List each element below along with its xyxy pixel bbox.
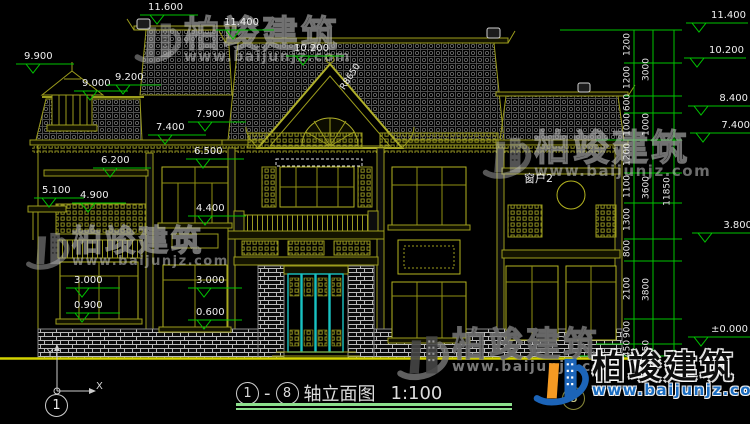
level-marker: 0.900 (66, 301, 120, 323)
level-value: 10.200 (684, 46, 746, 56)
centre-right-bay (388, 167, 470, 343)
level-value: 9.900 (16, 52, 74, 62)
ucs-x-label: X (96, 381, 103, 392)
level-value: 10.200 (286, 44, 344, 54)
dim-label: 11850 (664, 175, 673, 209)
level-marker: 9.900 (16, 52, 74, 74)
level-value: 11.400 (686, 11, 748, 21)
level-marker: 3.800 (692, 221, 750, 243)
entrance-door (258, 266, 374, 358)
level-marker: 8.400 (688, 94, 750, 116)
level-value: 3.800 (692, 221, 750, 231)
level-value: 11.400 (216, 18, 274, 28)
dim-label: 1100 (624, 170, 633, 204)
level-value: 7.900 (188, 110, 246, 120)
title-underline (236, 403, 512, 406)
level-value: 6.500 (186, 147, 244, 157)
level-value: ±0.000 (688, 325, 750, 335)
dim-label: 800 (624, 232, 633, 266)
level-value: 0.600 (188, 308, 242, 318)
level-value: 9.200 (107, 73, 161, 83)
level-marker: 0.600 (188, 308, 242, 330)
dim-label: 3000 (643, 53, 652, 87)
level-value: 4.400 (188, 204, 246, 214)
level-marker: 4.900 (72, 191, 126, 213)
level-marker: 6.200 (93, 156, 151, 178)
level-marker: 10.200 (684, 46, 746, 68)
title-underline-2 (236, 408, 512, 410)
window-label: 窗户2 (524, 170, 553, 186)
title-scale: 1:100 (391, 383, 443, 404)
level-value: 6.200 (93, 156, 151, 166)
level-marker: 9.200 (107, 73, 161, 95)
level-value: 3.000 (66, 276, 120, 286)
dim-label: 3800 (643, 273, 652, 307)
level-value: 7.400 (148, 123, 206, 133)
level-marker: 3.000 (188, 276, 242, 298)
dim-label: 2100 (624, 272, 633, 306)
title-separator: - (264, 383, 271, 404)
title-axis-start: 1 (236, 382, 259, 405)
cad-viewport: 11.600 11.400 10.200 9.900 9.000 9.200 7… (0, 0, 750, 424)
level-marker: ±0.000 (688, 325, 750, 347)
level-marker: 3.000 (66, 276, 120, 298)
dim-label: 450 (624, 332, 633, 366)
level-marker: 4.400 (188, 204, 246, 226)
dim-label: 1000 (643, 108, 652, 142)
dim-label: 1000 (624, 108, 633, 142)
level-value: 3.000 (188, 276, 242, 286)
title-axis-end: 8 (276, 382, 299, 405)
level-value: 7.400 (690, 121, 750, 131)
level-marker: 6.500 (186, 147, 244, 169)
axis-bubble-8: 8 (562, 387, 585, 410)
dim-label: 1200 (624, 28, 633, 62)
dim-label: 3600 (643, 171, 652, 205)
level-marker: 10.200 (286, 44, 344, 66)
right-wing (502, 168, 620, 340)
level-value: 4.900 (72, 191, 126, 201)
level-marker: 7.400 (690, 121, 750, 143)
level-marker: 11.400 (686, 11, 748, 33)
level-value: 8.400 (688, 94, 750, 104)
dim-label: 450 (643, 332, 652, 366)
level-value: 11.600 (140, 3, 198, 13)
level-marker: 7.400 (148, 123, 206, 145)
level-value: 0.900 (66, 301, 120, 311)
ucs-y-label: Y (47, 348, 53, 359)
dim-label: 1200 (624, 138, 633, 172)
axis-bubble-1: 1 (45, 394, 68, 417)
level-marker: 11.400 (216, 18, 274, 40)
level-marker: 11.600 (140, 3, 198, 25)
